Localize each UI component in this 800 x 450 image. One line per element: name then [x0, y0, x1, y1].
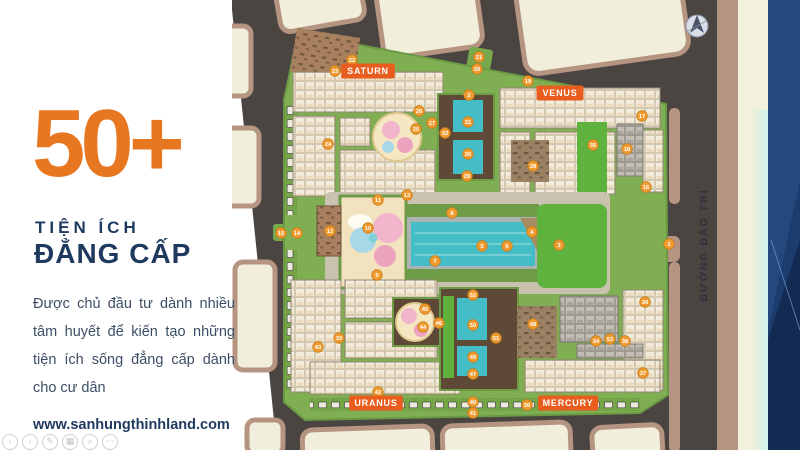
amenity-badge: 29 — [462, 171, 473, 182]
svg-text:20: 20 — [474, 67, 480, 73]
svg-text:36: 36 — [524, 403, 531, 409]
svg-text:47: 47 — [470, 372, 476, 378]
amenity-badge: 35 — [588, 140, 599, 151]
svg-text:42: 42 — [375, 390, 381, 396]
svg-text:7: 7 — [433, 259, 436, 265]
amenity-badge: 17 — [637, 111, 648, 122]
magnifier-icon[interactable]: ⌕ — [82, 434, 98, 450]
chevron-right-icon[interactable]: › — [22, 434, 38, 450]
svg-text:MERCURY: MERCURY — [543, 398, 594, 408]
amenity-badge: 26 — [414, 106, 425, 117]
svg-text:45: 45 — [422, 307, 429, 313]
cluster-uranus — [291, 280, 460, 394]
pen-icon[interactable]: ✎ — [42, 434, 58, 450]
amenity-badge: 23 — [330, 66, 341, 77]
amenity-badge: 45 — [420, 304, 431, 315]
svg-text:2: 2 — [467, 93, 470, 99]
amenity-badge: 7 — [430, 256, 441, 267]
svg-text:11: 11 — [375, 198, 382, 204]
svg-text:24: 24 — [325, 142, 332, 148]
amenity-badge: 10 — [363, 223, 374, 234]
svg-text:37: 37 — [640, 371, 646, 377]
saturn-playground — [373, 113, 421, 161]
svg-text:38: 38 — [622, 339, 629, 345]
svg-text:31: 31 — [465, 120, 472, 126]
amenity-badge: 3 — [554, 240, 565, 251]
svg-text:26: 26 — [416, 109, 423, 115]
amenity-badge: 31 — [463, 117, 474, 128]
amenity-badge: 50 — [468, 320, 479, 331]
zone-label-uranus: URANUS — [349, 396, 403, 411]
svg-text:25: 25 — [413, 127, 420, 133]
svg-text:30: 30 — [465, 152, 471, 158]
compass-icon — [686, 15, 708, 37]
svg-text:35: 35 — [590, 143, 597, 149]
amenity-badge: 47 — [468, 369, 479, 380]
zone-label-venus: VENUS — [537, 86, 584, 101]
amenity-badge: 27 — [427, 118, 438, 129]
svg-text:48: 48 — [530, 322, 537, 328]
slideshow-controls[interactable]: ‹›✎▦⌕⋯ — [2, 434, 118, 450]
amenity-badge: 9 — [372, 270, 383, 281]
svg-text:52: 52 — [470, 293, 476, 299]
svg-text:28: 28 — [530, 164, 537, 170]
amenity-badge: 19 — [523, 76, 534, 87]
amenity-badge: 32 — [440, 128, 451, 139]
amenity-badge: 13 — [402, 190, 413, 201]
svg-text:23: 23 — [332, 69, 339, 75]
svg-text:51: 51 — [493, 336, 500, 342]
amenity-badge: 2 — [464, 90, 475, 101]
amenity-badge: 49 — [468, 352, 479, 363]
slide: ĐƯỜNG ĐÀO TRÍ — [0, 0, 800, 450]
svg-text:21: 21 — [476, 55, 483, 61]
amenity-badge: 46 — [434, 318, 445, 329]
amenity-badge: 36 — [522, 400, 533, 411]
amenity-badge: 25 — [411, 124, 422, 135]
amenity-badge: 48 — [528, 319, 539, 330]
zone-label-mercury: MERCURY — [538, 396, 598, 411]
amenity-badge: 39 — [640, 297, 651, 308]
amenity-badge: 11 — [373, 195, 384, 206]
amenity-badge: 14 — [292, 228, 303, 239]
svg-text:URANUS: URANUS — [354, 398, 397, 408]
master-plan-map: ĐƯỜNG ĐÀO TRÍ — [225, 0, 800, 450]
svg-text:27: 27 — [429, 121, 435, 127]
svg-text:34: 34 — [593, 339, 600, 345]
amenity-badge: 6 — [502, 241, 513, 252]
svg-text:15: 15 — [278, 231, 285, 237]
amenity-badge: 38 — [620, 336, 631, 347]
amenity-badge: 21 — [474, 52, 485, 63]
amenity-badge: 44 — [418, 322, 429, 333]
chevron-left-icon[interactable]: ‹ — [2, 434, 18, 450]
amenity-badge: 20 — [472, 64, 483, 75]
amenity-badge: 1 — [664, 239, 675, 250]
amenity-badge: 34 — [591, 336, 602, 347]
svg-text:49: 49 — [470, 355, 477, 361]
svg-text:44: 44 — [420, 325, 427, 331]
amenity-badge: 15 — [276, 228, 287, 239]
svg-text:22: 22 — [349, 58, 355, 64]
amenity-badge: 52 — [468, 290, 479, 301]
svg-text:40: 40 — [470, 400, 476, 406]
street-label: ĐƯỜNG ĐÀO TRÍ — [697, 188, 710, 301]
amenity-badge: 33 — [334, 333, 345, 344]
amenity-badge: 16 — [641, 182, 652, 193]
event-lawn — [537, 204, 607, 288]
headline-line2: ĐẲNG CẤP — [34, 238, 191, 270]
svg-text:19: 19 — [525, 79, 532, 85]
amenity-badge: 8 — [447, 208, 458, 219]
amenity-badge: 30 — [463, 149, 474, 160]
svg-text:32: 32 — [442, 131, 448, 137]
amenity-badge: 24 — [323, 139, 334, 150]
navy-decor-band — [768, 0, 800, 450]
amenity-badge: 53 — [605, 334, 616, 345]
amenity-badge: 43 — [313, 342, 324, 353]
headline-line1: TIỆN ÍCH — [35, 218, 140, 238]
svg-text:12: 12 — [327, 229, 333, 235]
svg-text:41: 41 — [470, 411, 477, 417]
amenity-badge: 37 — [638, 368, 649, 379]
mercury-pool-upper — [457, 298, 487, 340]
svg-text:43: 43 — [315, 345, 322, 351]
amenity-badge: 41 — [468, 408, 479, 419]
info-panel: 50+ TIỆN ÍCH ĐẲNG CẤP Được chủ đầu tư dà… — [0, 0, 232, 450]
amenity-badge: 40 — [468, 397, 479, 408]
svg-text:17: 17 — [639, 114, 645, 120]
svg-text:10: 10 — [365, 226, 371, 232]
website-link[interactable]: www.sanhungthinhland.com — [33, 417, 230, 433]
amenity-badge: 18 — [622, 144, 633, 155]
amenity-badge: 28 — [528, 161, 539, 172]
cyan-glow — [752, 110, 768, 450]
svg-text:33: 33 — [336, 336, 343, 342]
central-amenities — [317, 192, 610, 294]
svg-text:18: 18 — [624, 147, 631, 153]
amenity-badge: 5 — [477, 241, 488, 252]
svg-text:14: 14 — [294, 231, 301, 237]
amenity-badge: 51 — [491, 333, 502, 344]
svg-text:16: 16 — [643, 185, 650, 191]
neighbor-blocks-bottom — [302, 422, 665, 450]
headline-number: 50+ — [32, 96, 180, 192]
description-paragraph: Được chủ đầu tư dành nhiều tâm huyết để … — [33, 290, 235, 402]
amenity-badge: 12 — [325, 226, 336, 237]
svg-text:50: 50 — [470, 323, 476, 329]
svg-text:53: 53 — [607, 337, 614, 343]
svg-text:13: 13 — [404, 193, 411, 199]
zone-label-saturn: SATURN — [341, 64, 395, 79]
ellipsis-icon[interactable]: ⋯ — [102, 434, 118, 450]
amenity-badge: 4 — [527, 227, 538, 238]
svg-text:SATURN: SATURN — [347, 66, 389, 76]
svg-text:39: 39 — [642, 300, 649, 306]
svg-text:29: 29 — [464, 174, 471, 180]
svg-text:VENUS: VENUS — [542, 88, 577, 98]
svg-text:46: 46 — [436, 321, 443, 327]
grid-icon[interactable]: ▦ — [62, 434, 78, 450]
